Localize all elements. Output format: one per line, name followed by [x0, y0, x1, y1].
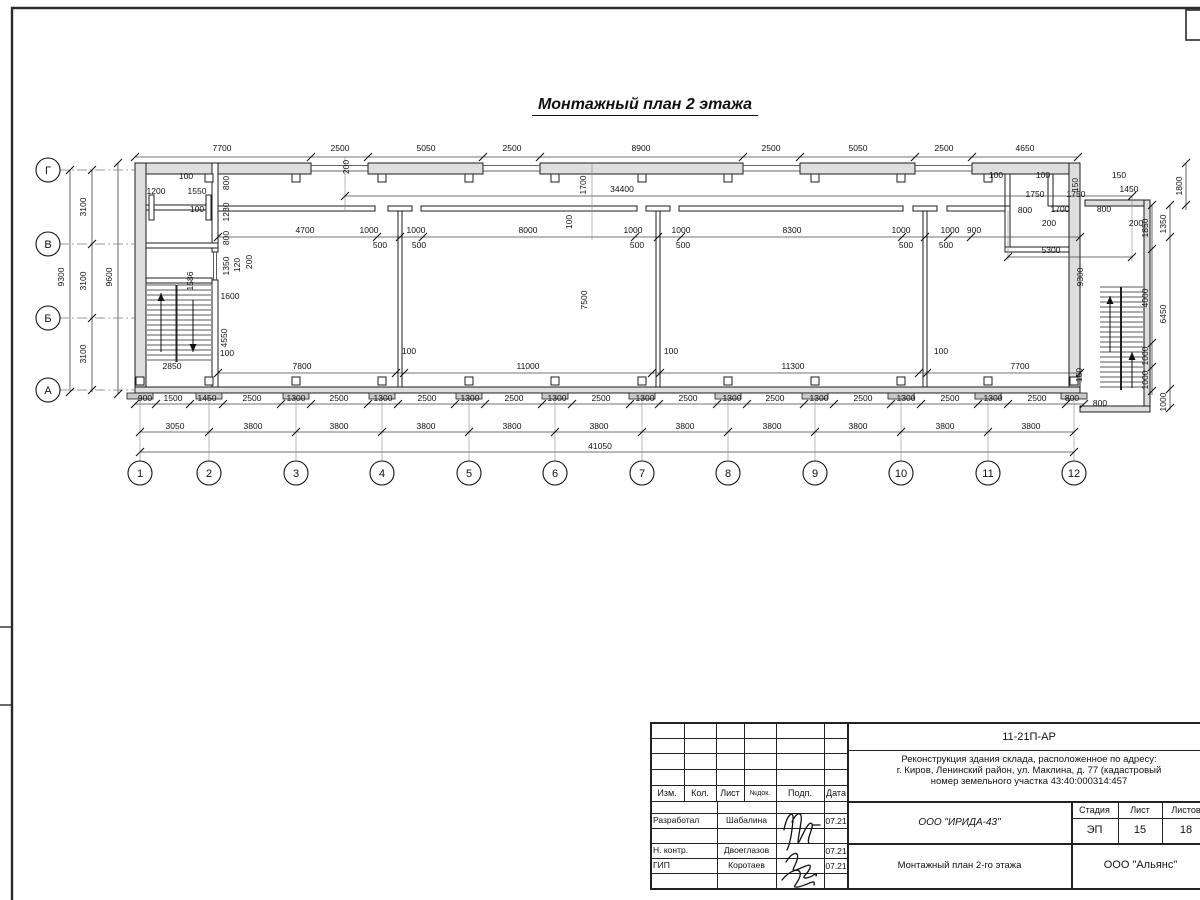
dim-label: 1000: [941, 225, 960, 235]
dim-label: 2850: [163, 361, 182, 371]
frame-corner-box: [1186, 10, 1200, 40]
dim-label: 9300: [56, 267, 66, 286]
dim-label: 8900: [632, 143, 651, 153]
dim-label: 500: [899, 240, 913, 250]
dim-label: 3800: [676, 421, 695, 431]
dim-label: 2500: [1028, 393, 1047, 403]
dim-label: 11300: [781, 361, 804, 371]
walls-group: [127, 163, 1150, 412]
dim-label: 1850: [1140, 218, 1150, 237]
dim-label: 1800: [1174, 176, 1184, 195]
dim-label: 1300: [548, 393, 567, 403]
org-name: ООО "ИРИДА-43": [848, 817, 1071, 829]
column-axis-bubble: 8: [725, 468, 731, 480]
dim-label: 1300: [374, 393, 393, 403]
dim-label: 1300: [897, 393, 916, 403]
dim-label: 500: [939, 240, 953, 250]
date-developer: 07.21: [824, 817, 848, 827]
dim-label: 100: [664, 346, 678, 356]
dim-label: 3050: [166, 421, 185, 431]
dim-label: 900: [967, 225, 981, 235]
date-ncontrol: 07.21: [824, 847, 848, 857]
dim-label: 500: [373, 240, 387, 250]
dim-label: 1350: [221, 256, 231, 275]
dim-label: 7800: [293, 361, 312, 371]
dim-label: 1550: [188, 186, 207, 196]
col-izm: Изм.: [650, 788, 684, 798]
signature-developer: [784, 814, 820, 850]
dim-label: 2500: [505, 393, 524, 403]
dim-label: 800: [1097, 204, 1111, 214]
plan-title-wrap: Монтажный план 2 этажа: [470, 96, 820, 116]
dim-label: 5050: [849, 143, 868, 153]
dim-label: 4000: [1140, 288, 1150, 307]
row-axis-bubble: А: [44, 385, 52, 397]
dim-label: 2500: [679, 393, 698, 403]
row-axis-bubble: В: [44, 239, 51, 251]
dim-label: 100: [179, 171, 193, 181]
dim-label: 3100: [78, 197, 88, 216]
dim-label: 120: [232, 258, 242, 272]
dim-label: 34400: [610, 184, 634, 194]
dim-label: 1000: [624, 225, 643, 235]
dim-label: 1350: [1158, 214, 1168, 233]
dim-label: 9600: [104, 267, 114, 286]
dim-label: 2500: [503, 143, 522, 153]
dim-label: 6450: [1158, 304, 1168, 323]
dim-label: 800: [221, 231, 231, 245]
dim-label: 2500: [941, 393, 960, 403]
dim-label: 900: [138, 393, 152, 403]
description-line-3: номер земельного участка 43:40:000314:45…: [848, 777, 1200, 788]
dim-label: 1300: [287, 393, 306, 403]
sheet-label: Лист: [1118, 805, 1162, 815]
col-list: Лист: [716, 788, 744, 798]
role-ncontrol: Н. контр.: [653, 846, 717, 856]
company-name: ООО "Альянс": [1071, 859, 1200, 872]
dim-label: 3800: [330, 421, 349, 431]
role-gip: ГИП: [653, 861, 717, 871]
dim-label: 1500: [164, 393, 183, 403]
stairs-group: [147, 285, 1143, 390]
dim-label: 3100: [78, 344, 88, 363]
dim-label: 1700: [1051, 204, 1070, 214]
dim-label: 11000: [516, 361, 539, 371]
row-axis-bubble: Б: [44, 313, 51, 325]
sheet-number: 15: [1118, 824, 1162, 837]
dim-label: 5300: [1042, 245, 1061, 255]
dim-label: 100: [934, 346, 948, 356]
dim-label: 1300: [984, 393, 1003, 403]
dim-label: 800: [1018, 205, 1032, 215]
column-axis-bubble: 9: [812, 468, 818, 480]
dim-label: 1000: [1140, 346, 1150, 365]
dim-label: 2500: [243, 393, 262, 403]
dim-label: 150: [1074, 368, 1084, 382]
dim-label: 7500: [579, 290, 589, 309]
stage-value: ЭП: [1071, 824, 1118, 837]
dim-label: 3800: [590, 421, 609, 431]
dim-label: 2500: [766, 393, 785, 403]
title-block: Изм. Кол. Лист №док. Подп. Дата Разработ…: [650, 722, 1200, 890]
column-axis-bubble: 6: [552, 468, 558, 480]
dim-label: 100: [1036, 170, 1050, 180]
dim-label: 1000: [672, 225, 691, 235]
dimension-lines-group: [59, 153, 1190, 461]
sheets-label: Листов: [1162, 805, 1200, 815]
signatures: [776, 800, 824, 890]
dim-label: 100: [989, 170, 1003, 180]
dim-label: 1750: [1026, 189, 1045, 199]
dim-label: 1300: [723, 393, 742, 403]
dim-label: 200: [341, 160, 351, 174]
dim-label: 9300: [1075, 267, 1085, 286]
dim-label: 2500: [418, 393, 437, 403]
dim-label: 500: [676, 240, 690, 250]
drawing-title: Монтажный план 2-го этажа: [848, 861, 1071, 872]
dim-label: 8000: [519, 225, 538, 235]
dimension-labels-group: 7700250050502500890025005050250046502003…: [56, 143, 1184, 451]
column-axis-bubble: 4: [379, 468, 385, 480]
dim-label: 1750: [1067, 189, 1086, 199]
dim-label: 100: [220, 348, 234, 358]
dim-label: 1300: [461, 393, 480, 403]
dim-label: 3800: [1022, 421, 1041, 431]
column-axis-bubble: 1: [137, 468, 143, 480]
dim-label: 100: [402, 346, 416, 356]
col-podp: Подп.: [776, 788, 824, 798]
dim-label: 800: [221, 176, 231, 190]
column-axis-bubble: 7: [639, 468, 645, 480]
dim-label: 1000: [407, 225, 426, 235]
col-ndok: №док.: [744, 790, 776, 798]
dim-label: 8300: [783, 225, 802, 235]
name-ncontrol: Двоеглазов: [717, 846, 776, 856]
col-data: Дата: [824, 788, 848, 798]
dim-label: 4700: [296, 225, 315, 235]
dim-label: 3100: [78, 271, 88, 290]
dim-label: 100: [190, 204, 204, 214]
dim-label: 2500: [854, 393, 873, 403]
dim-label: 1000: [360, 225, 379, 235]
dim-label: 5050: [417, 143, 436, 153]
column-axis-bubble: 12: [1068, 468, 1080, 480]
dim-label: 3800: [763, 421, 782, 431]
dim-label: 1000: [1140, 370, 1150, 389]
dim-label: 3800: [417, 421, 436, 431]
row-axis-bubble: Г: [45, 165, 51, 177]
dim-label: 7700: [1011, 361, 1030, 371]
dim-label: 1700: [578, 175, 588, 194]
column-axis-bubble: 11: [982, 468, 993, 480]
project-description: Реконструкция здания склада, расположенн…: [848, 755, 1200, 788]
dim-label: 500: [412, 240, 426, 250]
plan-title: Монтажный план 2 этажа: [532, 96, 758, 116]
date-gip: 07.21: [824, 862, 848, 872]
stage-label: Стадия: [1071, 805, 1118, 815]
dim-label: 1300: [636, 393, 655, 403]
column-axis-bubble: 3: [293, 468, 299, 480]
drawing-sheet: { "sheet": { "title": "Монтажный план 2 …: [0, 0, 1200, 900]
dim-label: 1450: [1120, 184, 1139, 194]
dim-label: 2500: [935, 143, 954, 153]
column-axis-bubble: 2: [206, 468, 212, 480]
dim-label: 800: [1093, 398, 1107, 408]
dim-label: 2500: [331, 143, 350, 153]
dim-label: 1300: [810, 393, 829, 403]
dim-label: 4550: [219, 328, 229, 347]
dim-label: 3800: [244, 421, 263, 431]
name-developer: Шабалина: [717, 816, 776, 826]
dim-label: 2500: [592, 393, 611, 403]
name-gip: Коротаев: [717, 861, 776, 871]
dim-label: 41050: [588, 441, 612, 451]
dim-label: 2500: [762, 143, 781, 153]
dim-label: 1000: [1158, 392, 1168, 411]
doc-number: 11-21П-АР: [848, 731, 1200, 744]
dim-label: 150: [1112, 170, 1126, 180]
dim-label: 1200: [147, 186, 166, 196]
dim-label: 1586: [185, 271, 195, 290]
dim-label: 3800: [849, 421, 868, 431]
column-axis-bubble: 10: [895, 468, 907, 480]
dim-label: 1280: [221, 202, 231, 221]
dim-label: 100: [564, 215, 574, 229]
dim-label: 1600: [221, 291, 240, 301]
dim-label: 1000: [892, 225, 911, 235]
role-developer: Разработал: [653, 816, 717, 826]
col-kol: Кол.: [684, 788, 716, 798]
dim-label: 2500: [330, 393, 349, 403]
dim-label: 4650: [1016, 143, 1035, 153]
signature-gip: [782, 853, 817, 887]
dim-label: 3800: [936, 421, 955, 431]
dim-label: 500: [630, 240, 644, 250]
column-axis-bubble: 5: [466, 468, 472, 480]
dim-label: 200: [244, 255, 254, 269]
dim-label: 7700: [213, 143, 232, 153]
dim-label: 800: [1065, 393, 1079, 403]
sheets-total: 18: [1162, 824, 1200, 837]
dim-label: 200: [1042, 218, 1056, 228]
dim-label: 1450: [198, 393, 217, 403]
dim-label: 3800: [503, 421, 522, 431]
